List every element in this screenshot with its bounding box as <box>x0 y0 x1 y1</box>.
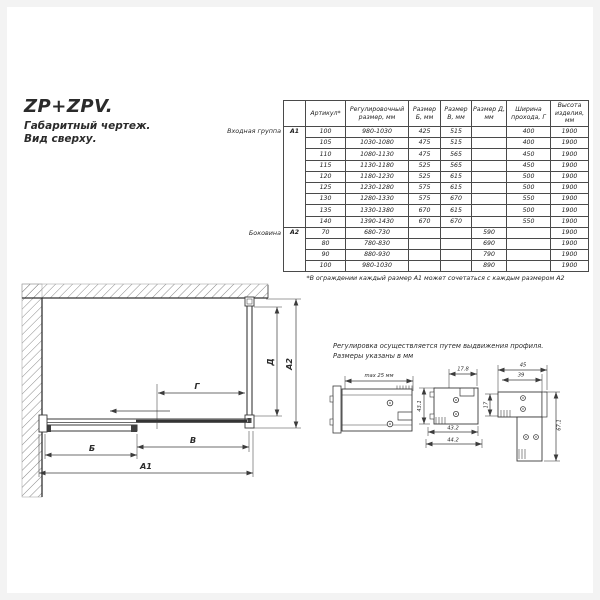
spec-cell: 1180-1230 <box>346 171 409 182</box>
wall-channel <box>333 386 341 433</box>
spec-cell <box>472 127 507 138</box>
spec-cell <box>472 216 507 227</box>
screw-dot <box>525 436 526 437</box>
spec-row: 1051030-10804755154001900 <box>284 138 589 149</box>
group-label-entrance: Входная группа <box>181 127 281 135</box>
spec-cell: 1900 <box>551 149 589 160</box>
group-code-cell: А1 <box>284 127 306 228</box>
spec-cell <box>507 238 551 249</box>
spec-cell <box>507 227 551 238</box>
wall-channel-tab-2 <box>330 419 333 425</box>
spec-cell: 575 <box>409 194 441 205</box>
col-size-d: Размер Д, мм <box>472 101 507 127</box>
spec-cell <box>441 238 472 249</box>
col-size-v: Размер В, мм <box>441 101 472 127</box>
spec-cell: 1330-1380 <box>346 205 409 216</box>
spec-cell: 1230-1280 <box>346 182 409 193</box>
profile-detail-corner: 45 39 17 <box>484 363 563 462</box>
spec-cell: 515 <box>441 127 472 138</box>
dim-label-45: 45 <box>520 363 527 369</box>
dim-label-17: 17 <box>484 401 490 408</box>
spec-row: 1401390-14306706705501900 <box>284 216 589 227</box>
top-corner-block <box>245 297 254 306</box>
dim-label-671: 67.1 <box>557 419 563 431</box>
sliding-door-panel <box>45 425 137 431</box>
spec-row: 1101080-11304755654501900 <box>284 149 589 160</box>
spec-cell: 140 <box>306 216 346 227</box>
spec-cell <box>472 149 507 160</box>
spec-cell: 105 <box>306 138 346 149</box>
guide-tab-1 <box>430 392 434 397</box>
spec-cell: 780-830 <box>346 238 409 249</box>
spec-cell <box>409 250 441 261</box>
dim-label-max25: max 25 мм <box>364 373 393 379</box>
spec-cell: 1030-1080 <box>346 138 409 149</box>
spec-row: 90880-9307901900 <box>284 250 589 261</box>
spec-cell: 690 <box>472 238 507 249</box>
spec-cell: 115 <box>306 160 346 171</box>
spec-cell: 1900 <box>551 127 589 138</box>
spec-cell: 1080-1130 <box>346 149 409 160</box>
spec-cell: 475 <box>409 149 441 160</box>
dim-label-a1: А1 <box>139 461 152 471</box>
profile-detail-wall: max 25 мм <box>330 373 413 433</box>
spec-cell: 1900 <box>551 138 589 149</box>
plan-dimensions: Г Б В А1 Д А2 <box>39 299 301 477</box>
spec-cell: 130 <box>306 194 346 205</box>
spec-cell <box>507 261 551 272</box>
spec-cell: 1900 <box>551 250 589 261</box>
spec-cell: 615 <box>441 171 472 182</box>
spec-cell: 890 <box>472 261 507 272</box>
view-label: Вид сверху. <box>24 133 150 146</box>
corner-arm-horizontal <box>498 392 542 417</box>
spec-cell: 500 <box>507 205 551 216</box>
spec-cell: 615 <box>441 205 472 216</box>
wall-channel-tab-1 <box>330 396 333 402</box>
dim-label-door: В <box>190 435 196 445</box>
adjust-profile-comb <box>397 386 412 390</box>
spec-cell: 670 <box>441 216 472 227</box>
spec-cell: 550 <box>507 216 551 227</box>
adjustment-note: Регулировка осуществляется путем выдвиже… <box>333 341 543 351</box>
spec-cell: 590 <box>472 227 507 238</box>
dim-label-178: 17.8 <box>457 367 469 373</box>
spec-cell: 125 <box>306 182 346 193</box>
spec-cell <box>409 261 441 272</box>
dim-label-passage: Г <box>194 381 200 391</box>
product-title: ZP+ZPV. <box>24 96 150 117</box>
spec-cell: 515 <box>441 138 472 149</box>
spec-cell: 790 <box>472 250 507 261</box>
spec-row: 1351330-13806706155001900 <box>284 205 589 216</box>
title-block: ZP+ZPV. Габаритный чертеж. Вид сверху. <box>24 96 150 146</box>
spec-cell: 1900 <box>551 238 589 249</box>
spec-cell: 1900 <box>551 171 589 182</box>
profile-notes: Регулировка осуществляется путем выдвиже… <box>333 341 543 362</box>
spec-cell <box>441 261 472 272</box>
spec-cell: 615 <box>441 182 472 193</box>
spec-cell <box>441 250 472 261</box>
spec-cell: 1900 <box>551 194 589 205</box>
spec-cell: 400 <box>507 127 551 138</box>
spec-cell: 680-730 <box>346 227 409 238</box>
guide-tab-2 <box>430 414 434 419</box>
spec-cell: 565 <box>441 149 472 160</box>
top-wall-hatch <box>22 284 268 298</box>
drawing-sheet: Г Б В А1 Д А2 <box>0 0 600 600</box>
guide-profile-body <box>434 388 478 424</box>
spec-cell: 135 <box>306 205 346 216</box>
spec-cell: 1280-1330 <box>346 194 409 205</box>
spec-cell <box>507 250 551 261</box>
side-glass-panel <box>247 305 252 418</box>
spec-cell <box>409 227 441 238</box>
corner-arm-vertical <box>517 417 542 461</box>
dim-label-d: Д <box>265 358 275 366</box>
spec-cell: 980-1030 <box>346 261 409 272</box>
spec-cell: 1900 <box>551 205 589 216</box>
spec-cell <box>409 238 441 249</box>
dim-label-432: 43.2 <box>447 426 459 432</box>
spec-row: А270680-7305901900 <box>284 227 589 238</box>
screw-dot <box>389 402 391 404</box>
col-adjust-size: Регулировочный размер, мм <box>346 101 409 127</box>
table-footnote: *В ограждении каждый размер А1 может соч… <box>283 275 588 282</box>
screw-dot <box>535 436 536 437</box>
door-end-cap-right <box>131 425 137 433</box>
screw-dot <box>522 397 523 398</box>
units-note: Размеры указаны в мм <box>333 351 543 361</box>
spec-cell: 1390-1430 <box>346 216 409 227</box>
spec-cell: 90 <box>306 250 346 261</box>
spec-cell <box>472 194 507 205</box>
adjust-profile-body <box>342 389 412 431</box>
spec-cell <box>472 171 507 182</box>
dim-label-431: 43.1 <box>417 400 423 412</box>
spec-cell: 670 <box>409 216 441 227</box>
dim-label-fixed: Б <box>89 443 95 453</box>
spec-cell: 400 <box>507 138 551 149</box>
spec-row: 1251230-12805756155001900 <box>284 182 589 193</box>
spec-cell <box>472 205 507 216</box>
spec-cell: 670 <box>409 205 441 216</box>
spec-cell: 1900 <box>551 261 589 272</box>
spec-cell: 550 <box>507 194 551 205</box>
group-code-cell: А2 <box>284 227 306 272</box>
spec-row: 1151130-11805255654501900 <box>284 160 589 171</box>
drawing-type-label: Габаритный чертеж. <box>24 120 150 133</box>
spec-table-body: А1100980-103042551540019001051030-108047… <box>284 127 589 272</box>
spec-cell <box>441 227 472 238</box>
spec-cell: 110 <box>306 149 346 160</box>
dim-label-39: 39 <box>518 373 525 379</box>
spec-cell: 670 <box>441 194 472 205</box>
spec-cell: 100 <box>306 261 346 272</box>
spec-cell: 425 <box>409 127 441 138</box>
spec-cell <box>472 160 507 171</box>
spec-cell: 475 <box>409 138 441 149</box>
spec-cell: 500 <box>507 171 551 182</box>
spec-row: 1301280-13305756705501900 <box>284 194 589 205</box>
spec-cell: 70 <box>306 227 346 238</box>
spec-cell: 120 <box>306 171 346 182</box>
corner-cell <box>284 101 306 127</box>
spec-cell: 1900 <box>551 182 589 193</box>
col-size-b: Размер Б, мм <box>409 101 441 127</box>
spec-cell: 575 <box>409 182 441 193</box>
spec-cell: 450 <box>507 149 551 160</box>
dim-label-442: 44.2 <box>447 438 459 444</box>
spec-cell: 1900 <box>551 227 589 238</box>
spec-cell: 100 <box>306 127 346 138</box>
spec-cell: 525 <box>409 160 441 171</box>
enclosure <box>39 297 254 432</box>
col-height: Высота изделия, мм <box>551 101 589 127</box>
spec-cell: 980-1030 <box>346 127 409 138</box>
spec-cell: 450 <box>507 160 551 171</box>
spec-cell <box>472 182 507 193</box>
spec-cell: 525 <box>409 171 441 182</box>
wall-profile-block <box>39 415 47 432</box>
spec-cell: 1900 <box>551 160 589 171</box>
col-article: Артикул* <box>306 101 346 127</box>
col-passage-width: Ширина прохода, Г <box>507 101 551 127</box>
spec-row: А1100980-10304255154001900 <box>284 127 589 138</box>
spec-cell: 1900 <box>551 216 589 227</box>
spec-row: 80780-8306901900 <box>284 238 589 249</box>
spec-table: Артикул* Регулировочный размер, мм Разме… <box>283 100 589 272</box>
screw-dot <box>455 413 457 415</box>
spec-row: 1201180-12305256155001900 <box>284 171 589 182</box>
group-label-side-panel: Боковина <box>181 229 281 237</box>
dim-label-a2: А2 <box>284 358 294 371</box>
screw-dot <box>455 399 457 401</box>
screw-dot <box>522 408 523 409</box>
corner-arm-edge <box>542 392 547 417</box>
screw-dot <box>389 423 391 425</box>
spec-cell: 500 <box>507 182 551 193</box>
spec-cell: 80 <box>306 238 346 249</box>
spec-cell <box>472 138 507 149</box>
spec-cell: 880-930 <box>346 250 409 261</box>
spec-cell: 565 <box>441 160 472 171</box>
spec-row: 100980-10308901900 <box>284 261 589 272</box>
profile-detail-guide: 17.8 43.1 43.2 44.2 <box>417 367 482 449</box>
spec-header-row: Артикул* Регулировочный размер, мм Разме… <box>284 101 589 127</box>
spec-cell: 1130-1180 <box>346 160 409 171</box>
plan-drawing: Г Б В А1 Д А2 <box>0 0 600 600</box>
